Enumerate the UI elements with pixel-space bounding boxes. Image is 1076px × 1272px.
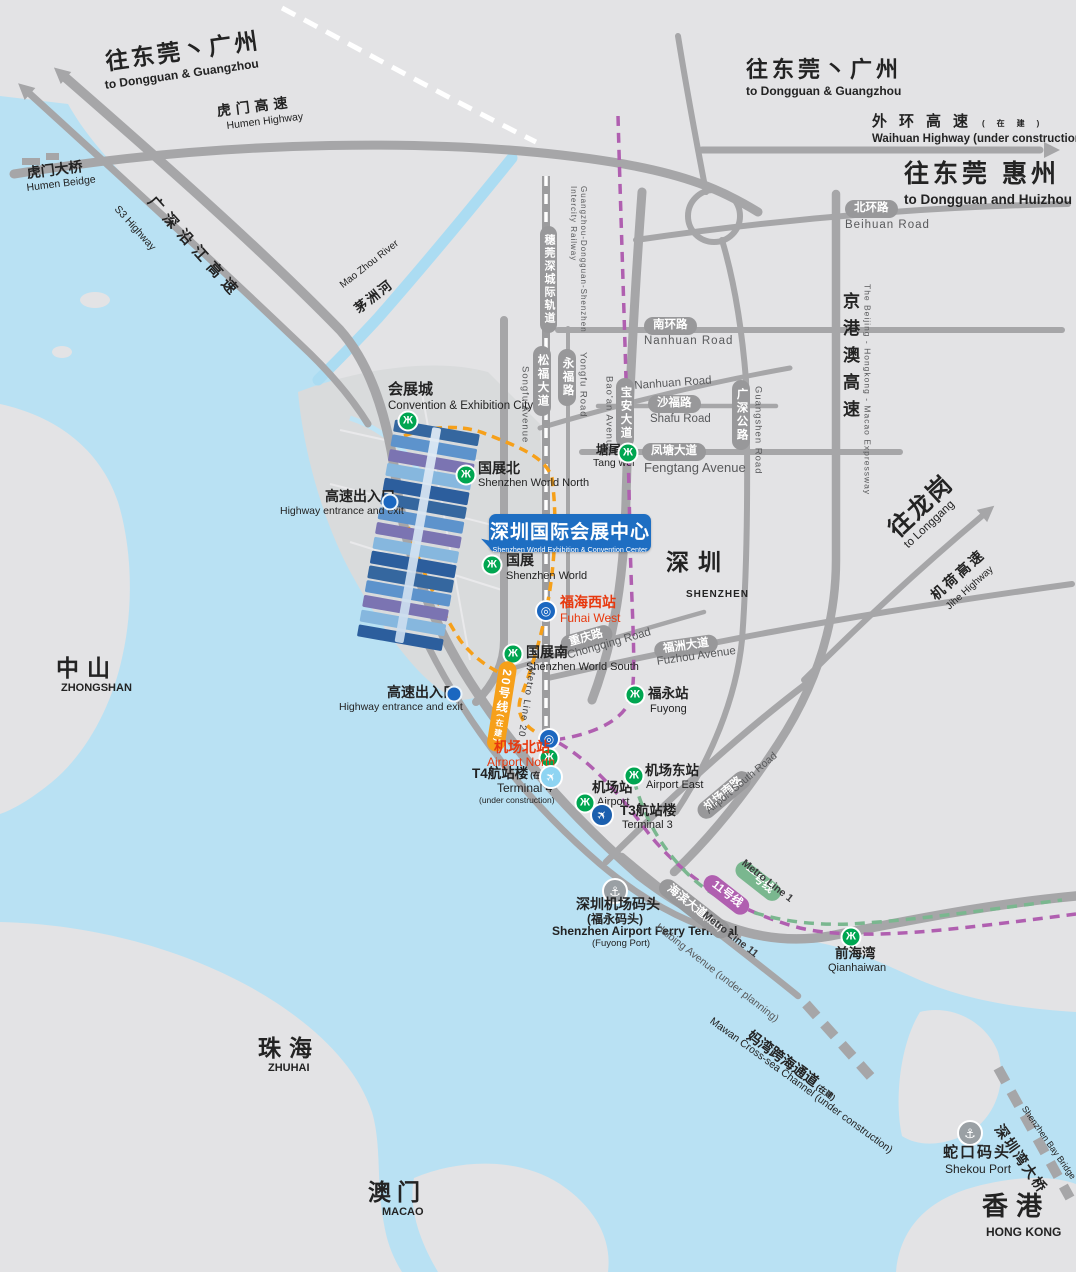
fengtang-avenue-pill: 凤塘大道 xyxy=(642,443,706,461)
beihuan-road-en: Beihuan Road xyxy=(845,219,930,232)
intercity-rail-en: Guangzhou-Dongguan-Shenzhen Intercity Ra… xyxy=(562,186,588,341)
zhuhai-zh: 珠海 xyxy=(258,1036,320,1062)
waihuan-highway-zh: 外环高速(在建) xyxy=(872,114,1051,131)
world-south-en: Shenzhen World South xyxy=(526,661,639,673)
shenzhen-world-access-map: 往东莞丶广州 to Dongguan & Guangzhou 虎门高速 Hume… xyxy=(0,0,1076,1272)
zhongshan-zh: 中山 xyxy=(56,656,118,682)
direction-ne-en: to Dongguan & Guangzhou xyxy=(746,85,901,98)
metro-icon: Ж xyxy=(841,927,862,948)
guangshen-road-pill: 广深公路 xyxy=(732,380,750,450)
highway-exit-1-dot xyxy=(382,494,399,511)
world-south-zh: 国展南 xyxy=(526,645,568,661)
macao-land xyxy=(412,1164,608,1272)
cec-city-zh: 会展城 xyxy=(388,382,433,399)
fuhai-west-zh: 福海西站 xyxy=(560,595,616,611)
shenzhen-region-zh: 深圳 xyxy=(666,550,730,576)
macao-en: MACAO xyxy=(382,1206,424,1218)
metro-icon: Ж xyxy=(482,555,503,576)
shafu-road-en: Shafu Road xyxy=(650,413,711,426)
waihuan-highway-en: Waihuan Highway (under construction) xyxy=(872,133,1076,146)
hongkong-zh: 香港 xyxy=(982,1192,1050,1221)
guangshen-road-en: Guangshen Road xyxy=(752,386,763,474)
highway-exit-2-dot xyxy=(446,686,463,703)
terminal4-sub: (under construction) xyxy=(479,796,555,806)
macao-zh: 澳门 xyxy=(368,1180,426,1206)
venue-badge: 深圳国际会展中心 Shenzhen World Exhibition & Con… xyxy=(489,514,651,552)
shekou-peninsula xyxy=(899,1010,1001,1144)
fuhai-west-en: Fuhai West xyxy=(560,612,620,625)
anchor-icon: ⚓ xyxy=(957,1120,983,1146)
zhongshan-en: ZHONGSHAN xyxy=(61,682,132,694)
metro-icon: Ж xyxy=(456,465,477,486)
metro-icon: Ж xyxy=(398,411,419,432)
airport-east-en: Airport East xyxy=(646,779,703,791)
humen-bridge-mark-2 xyxy=(46,153,59,160)
mawan-channel-dashed xyxy=(806,1004,872,1078)
map-base xyxy=(0,0,1076,1272)
metro-icon: Ж xyxy=(624,766,645,787)
hongkong-en: HONG KONG xyxy=(986,1226,1061,1239)
terminal3-zh: T3航站楼 xyxy=(620,803,676,818)
yongfu-road-en: Yongfu Road xyxy=(577,352,588,418)
metro-icon: Ж xyxy=(618,443,639,464)
estuary-island-2 xyxy=(52,346,72,358)
ferry-terminal-zh: 深圳机场码头 xyxy=(576,897,660,913)
baoan-avenue-en: Bao'an Avenue xyxy=(603,376,614,452)
jinggangao-expressway-en: The Beijing - Hongkong - Macao Expresswa… xyxy=(862,284,872,495)
zhuhai-land xyxy=(0,922,402,1272)
world-station-zh: 国展 xyxy=(506,553,534,569)
yongfu-road-pill: 永福路 xyxy=(558,349,576,406)
airport-north-zh: 机场北站 xyxy=(494,740,550,756)
world-north-en: Shenzhen World North xyxy=(478,477,589,489)
jinggangao-expressway-zh: 京港澳高速 xyxy=(840,292,859,427)
fuyong-station-en: Fuyong xyxy=(650,703,687,715)
metro-icon: Ж xyxy=(625,685,646,706)
terminal3-en: Terminal 3 xyxy=(622,819,673,831)
highway-exit-2-en: Highway entrance and exit xyxy=(339,702,463,714)
ferry-terminal-en2: (Fuyong Port) xyxy=(592,939,650,950)
venue-title-zh: 深圳国际会展中心 xyxy=(489,517,651,544)
beihuan-road-pill: 北环路 xyxy=(845,200,898,218)
fengtang-avenue-en: Fengtang Avenue xyxy=(644,461,746,476)
zhuhai-en: ZHUHAI xyxy=(268,1062,310,1074)
intercity-station-icon: ◎ xyxy=(535,600,557,622)
shekou-port-zh: 蛇口码头 xyxy=(943,1145,1011,1162)
world-north-zh: 国展北 xyxy=(478,461,520,477)
terminal4-plane-icon: ✈ xyxy=(539,765,563,789)
nanhuan-road-pill: 南环路 xyxy=(644,317,697,335)
shekou-port-en: Shekou Port xyxy=(945,1163,1011,1176)
direction-ne-zh: 往东莞丶广州 xyxy=(746,58,902,83)
intercity-rail-pill: 穗莞深城际轨道 xyxy=(540,226,557,333)
qianhaiwan-zh: 前海湾 xyxy=(835,946,876,961)
zhongshan-land xyxy=(0,404,130,814)
terminal3-plane-icon: ✈ xyxy=(590,803,614,827)
shenzhen-region-en: SHENZHEN xyxy=(686,589,749,600)
direction-east-en: to Dongguan and Huizhou xyxy=(904,192,1072,207)
nanhuan-road-en: Nanhuan Road xyxy=(644,335,733,348)
estuary-island xyxy=(80,292,110,308)
airport-east-zh: 机场东站 xyxy=(645,763,699,778)
shafu-road-pill: 沙福路 xyxy=(648,395,701,413)
qianhaiwan-en: Qianhaiwan xyxy=(828,962,886,974)
baoan-avenue-pill: 宝安大道 xyxy=(616,378,634,448)
fuyong-station-zh: 福永站 xyxy=(648,686,689,701)
direction-east-zh: 往东莞 惠州 xyxy=(904,160,1060,188)
songfu-avenue-pill: 松福大道 xyxy=(533,346,551,416)
world-station-en: Shenzhen World xyxy=(506,570,587,582)
